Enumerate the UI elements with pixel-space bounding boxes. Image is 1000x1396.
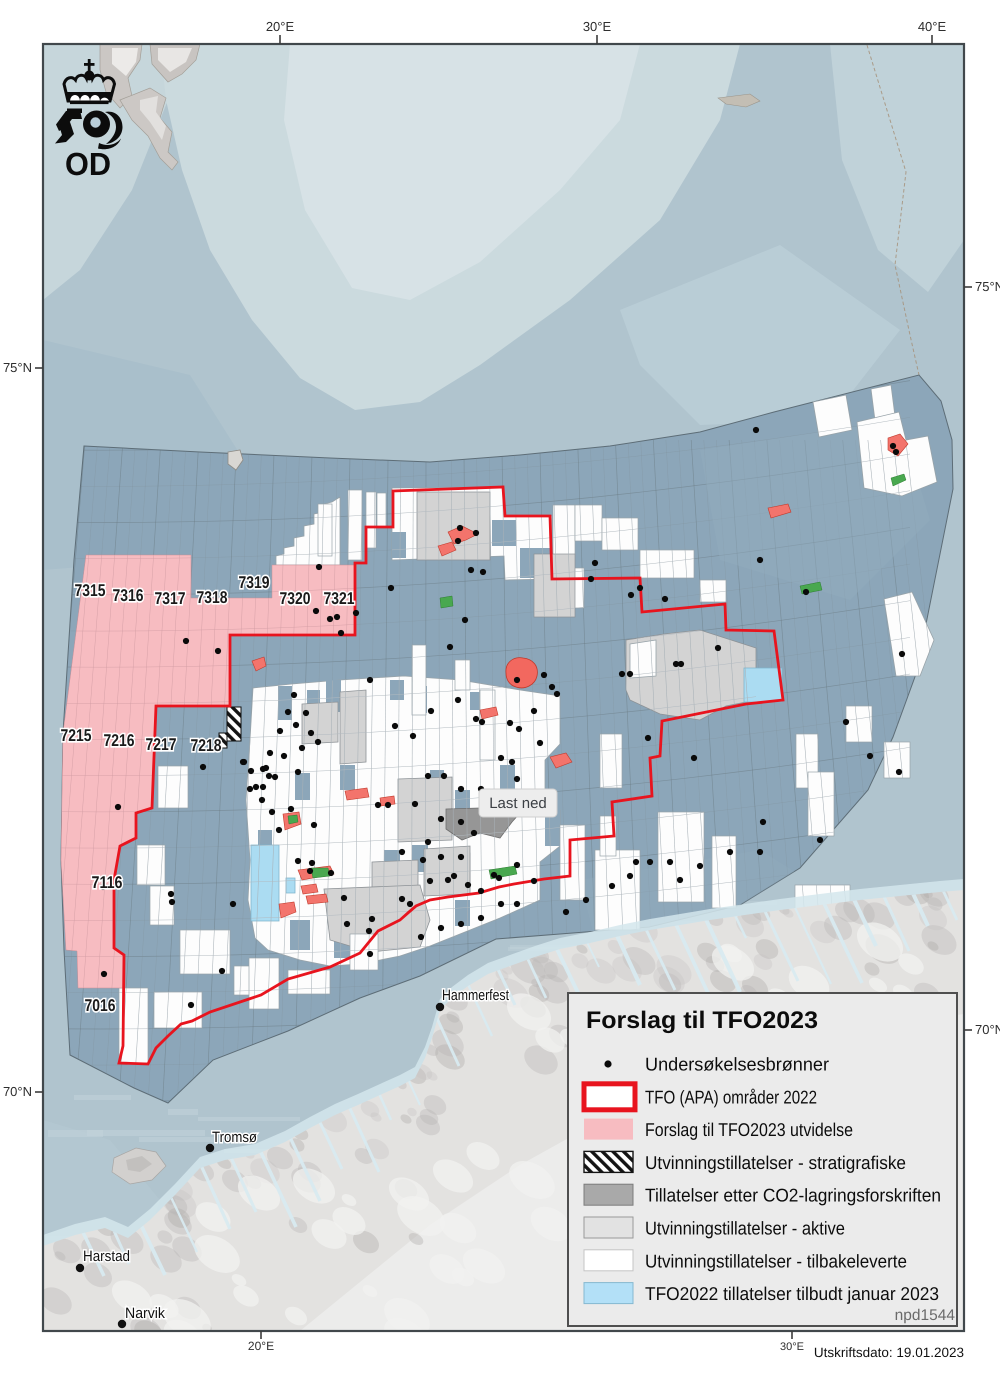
svg-text:7216: 7216 [104,731,135,750]
svg-text:OD: OD [65,146,111,182]
svg-text:7316: 7316 [113,586,144,605]
svg-text:Tillatelser etter CO2-lagrings: Tillatelser etter CO2-lagringsforskrifte… [645,1185,941,1206]
svg-text:7218: 7218 [191,736,222,755]
svg-text:30°E: 30°E [583,19,612,34]
svg-text:Utvinningstillatelser - tilbak: Utvinningstillatelser - tilbakeleverte [645,1250,907,1271]
svg-text:Forslag til TFO2023: Forslag til TFO2023 [586,1007,818,1034]
svg-text:npd1544: npd1544 [895,1307,956,1324]
svg-text:Harstad: Harstad [83,1248,130,1265]
svg-text:7321: 7321 [324,589,355,608]
svg-text:7320: 7320 [280,589,311,608]
svg-text:TFO2022 tillatelser tilbudt ja: TFO2022 tillatelser tilbudt januar 2023 [645,1283,939,1304]
svg-text:Forslag til TFO2023 utvidelse: Forslag til TFO2023 utvidelse [645,1119,853,1140]
svg-text:Hammerfest: Hammerfest [442,987,510,1004]
svg-text:20°E: 20°E [248,1339,274,1353]
svg-text:Tromsø: Tromsø [212,1129,257,1146]
svg-text:Utskriftsdato: 19.01.2023: Utskriftsdato: 19.01.2023 [814,1345,964,1360]
svg-text:7116: 7116 [92,873,123,892]
svg-text:7215: 7215 [61,726,92,745]
svg-text:Utvinningstillatelser - aktive: Utvinningstillatelser - aktive [645,1218,845,1239]
svg-text:70°N: 70°N [975,1022,1000,1037]
svg-text:7217: 7217 [146,735,177,754]
svg-text:TFO (APA) områder 2022: TFO (APA) områder 2022 [645,1086,817,1107]
svg-text:70°N: 70°N [3,1084,32,1099]
svg-text:7318: 7318 [197,588,228,607]
svg-text:75°N: 75°N [975,279,1000,294]
svg-text:7319: 7319 [239,573,270,592]
svg-text:7315: 7315 [75,581,106,600]
svg-text:Undersøkelsesbrønner: Undersøkelsesbrønner [645,1054,829,1075]
svg-text:Utvinningstillatelser - strati: Utvinningstillatelser - stratigrafiske [645,1152,906,1173]
svg-text:30°E: 30°E [780,1341,804,1353]
svg-text:40°E: 40°E [918,19,947,34]
svg-text:20°E: 20°E [266,19,295,34]
svg-text:Narvik: Narvik [125,1305,165,1322]
svg-text:75°N: 75°N [3,360,32,375]
svg-text:7317: 7317 [155,589,186,608]
svg-text:Last ned: Last ned [489,795,547,812]
svg-text:7016: 7016 [85,996,116,1015]
